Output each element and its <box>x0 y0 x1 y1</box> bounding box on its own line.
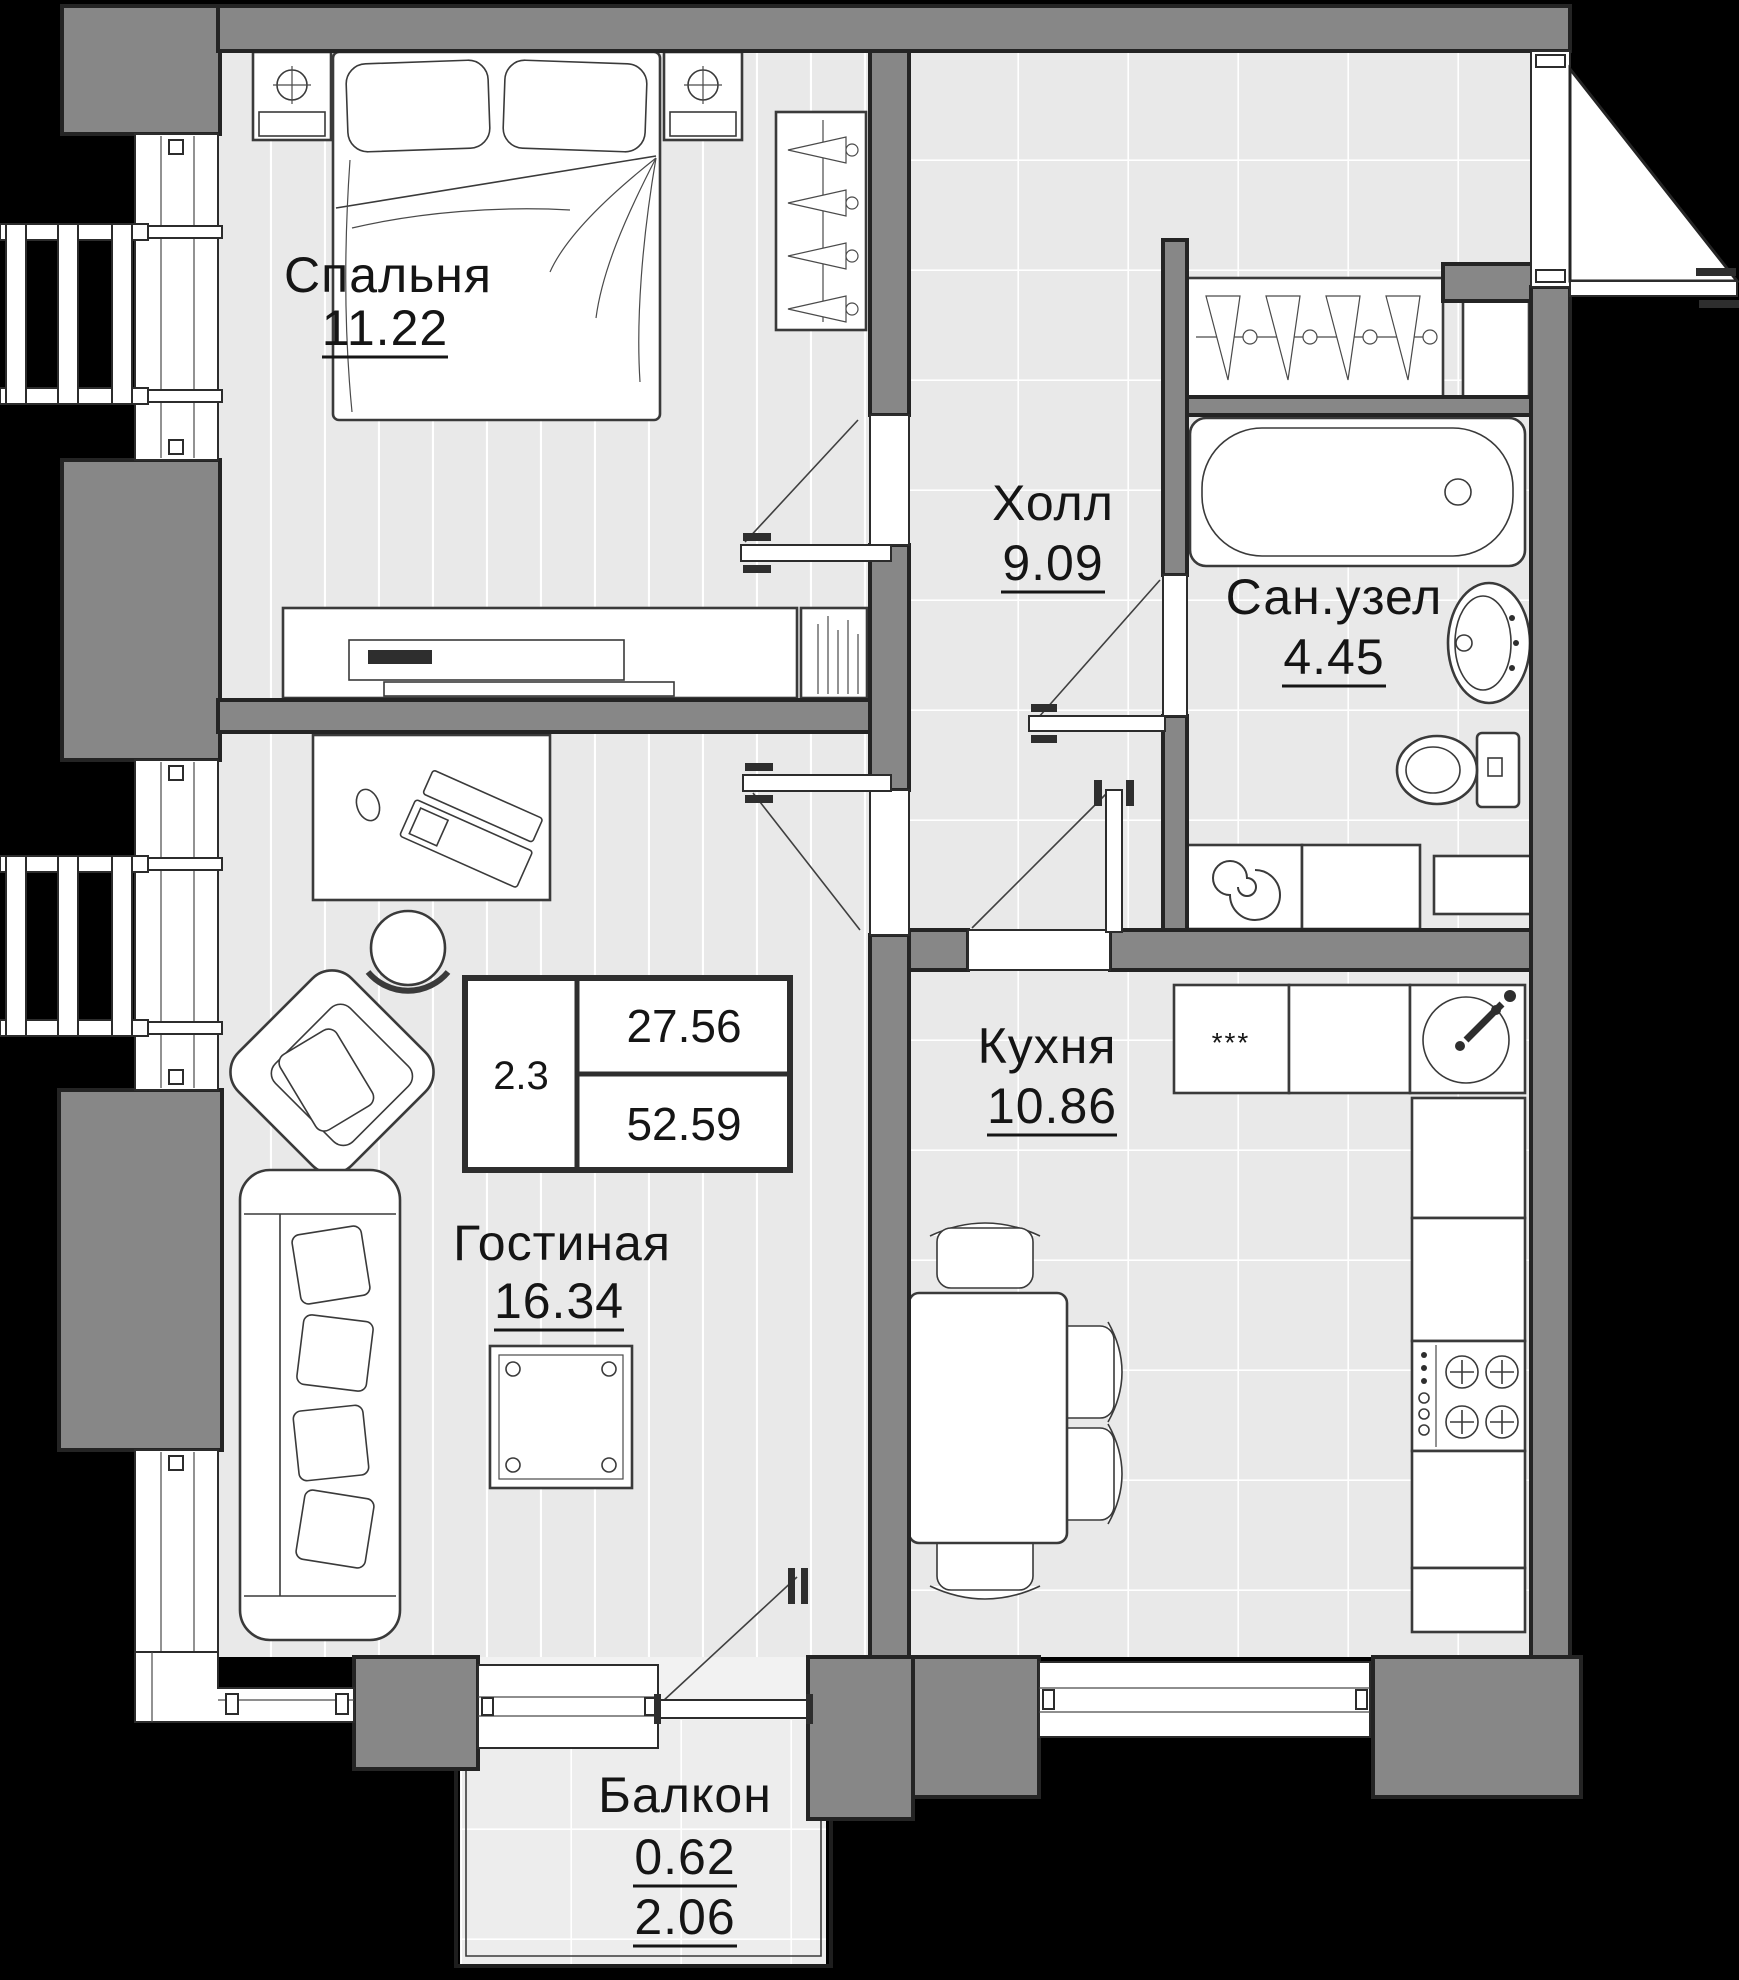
wall-left-block-low <box>59 1090 222 1450</box>
chair <box>937 1228 1033 1288</box>
kitchen-cabinets-column <box>1412 1098 1525 1632</box>
sofa-pillow <box>295 1489 375 1569</box>
door-leaf <box>1029 716 1165 731</box>
nightstand-left <box>253 52 331 140</box>
wall-balcony-right-block <box>808 1657 913 1819</box>
wall-bottom-right-block <box>1373 1657 1581 1797</box>
bath-cabinet <box>1302 845 1420 929</box>
bathroom-area: 4.45 <box>1283 629 1384 685</box>
bookshelf <box>801 608 867 698</box>
pillow <box>503 60 648 153</box>
wardrobe-hangers <box>776 112 866 330</box>
bath-low-cabinet <box>1434 856 1531 914</box>
wall-top <box>218 6 1570 51</box>
balcony-coefficient: 0.62 <box>634 1829 735 1885</box>
bedroom-area: 11.22 <box>322 300 448 356</box>
balcony-area: 2.06 <box>634 1889 735 1945</box>
stamp-living-area: 27.56 <box>626 1000 741 1052</box>
sofa-pillow <box>293 1405 370 1482</box>
wall-right <box>1531 287 1570 1657</box>
hall-cabinet <box>1463 301 1529 397</box>
balcony-door-leaf <box>658 1700 808 1718</box>
kitchen-sink <box>1410 985 1525 1093</box>
toilet <box>1397 733 1519 807</box>
wall-center-3 <box>870 935 909 1673</box>
nightstand-right <box>664 52 742 140</box>
wall-top-left-block <box>62 6 220 134</box>
sofa-pillow <box>291 1225 371 1305</box>
door-leaf <box>741 545 891 561</box>
area-stamp: 2.3 27.56 52.59 <box>465 978 790 1170</box>
stove <box>1412 1341 1525 1451</box>
wall-center-2 <box>870 545 909 790</box>
wall-left-block-mid <box>62 460 220 760</box>
door-leaf <box>1106 790 1122 932</box>
wall-bath-top <box>1187 397 1570 415</box>
wall-kitchen-top-left <box>909 930 968 970</box>
dining-table <box>909 1293 1067 1543</box>
floor-plan: *** <box>0 0 1739 1980</box>
bathroom-sink <box>1448 583 1530 703</box>
fridge: *** <box>1174 985 1289 1093</box>
floor-plan-svg: *** <box>0 0 1739 1980</box>
kitchen-name: Кухня <box>978 1018 1117 1074</box>
window-left-1 <box>135 134 218 460</box>
bedroom-name: Спальня <box>284 247 492 303</box>
wall-bedroom-living <box>218 700 870 732</box>
hall-name: Холл <box>992 475 1114 531</box>
stamp-total-area: 52.59 <box>626 1098 741 1150</box>
hall-closet <box>1187 278 1443 397</box>
bathroom-name: Сан.узел <box>1226 569 1443 625</box>
washing-machine <box>1186 845 1302 929</box>
wall-bottom-center-block <box>904 1657 1039 1797</box>
wall-bath-left-bottom <box>1163 716 1187 930</box>
door-leaf <box>1570 281 1737 296</box>
pillow <box>346 60 491 153</box>
fridge-stars-label: *** <box>1212 1027 1251 1058</box>
kitchen-counter <box>1289 985 1410 1093</box>
living-name: Гостиная <box>453 1215 671 1271</box>
tv-icon <box>368 650 432 664</box>
bathtub <box>1190 418 1525 566</box>
living-area: 16.34 <box>494 1273 624 1329</box>
wall-balcony-pier <box>354 1657 478 1769</box>
wall-kitchen-top-right <box>1110 930 1570 970</box>
hall-area: 9.09 <box>1002 535 1103 591</box>
wall-bath-left-top <box>1163 240 1187 575</box>
balcony-name: Балкон <box>598 1767 772 1823</box>
sofa-pillow <box>296 1314 374 1392</box>
door-leaf <box>743 775 891 791</box>
wall-center-1 <box>870 51 909 415</box>
drain-icon <box>1445 479 1471 505</box>
window-left-2 <box>135 760 218 1090</box>
stamp-rooms-floor: 2.3 <box>493 1054 549 1098</box>
kitchen-area: 10.86 <box>987 1078 1117 1134</box>
double-bed <box>333 52 660 420</box>
sofa <box>240 1170 400 1640</box>
coffee-table <box>490 1346 632 1488</box>
window-kitchen <box>1039 1662 1370 1737</box>
desk <box>313 735 550 900</box>
tv-dresser <box>283 608 797 698</box>
